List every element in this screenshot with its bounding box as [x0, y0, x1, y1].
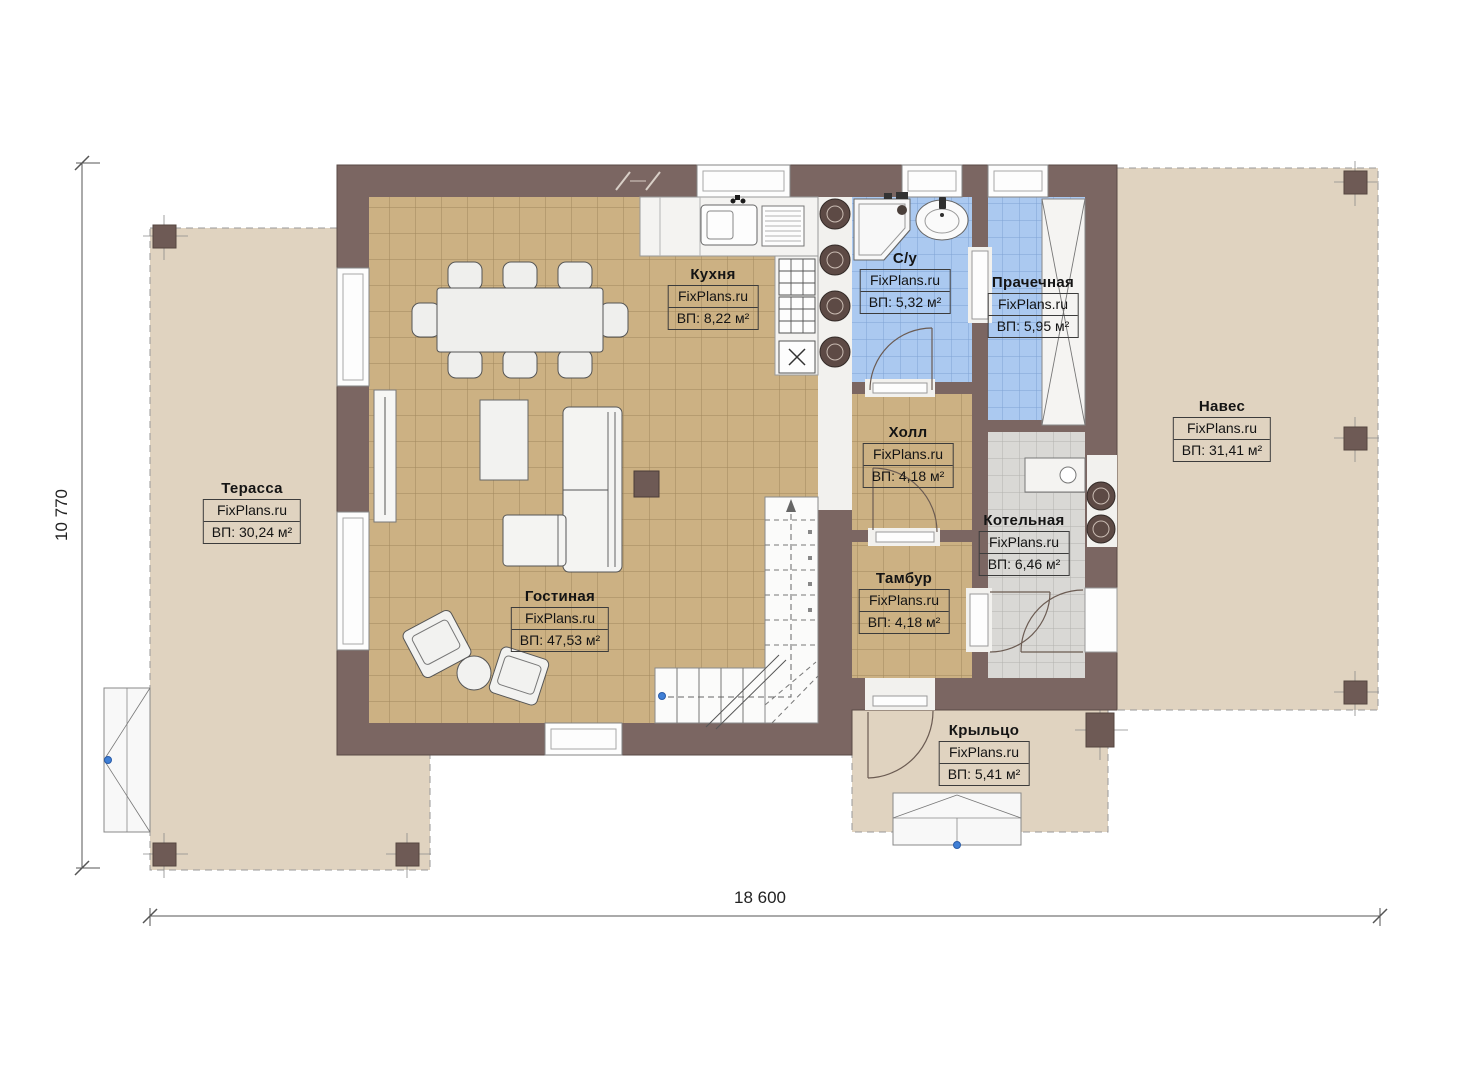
room-name: Навес	[1173, 398, 1271, 415]
room-info-box: FixPlans.ru ВП: 30,24 м²	[203, 499, 301, 544]
room-area: ВП: 30,24 м²	[204, 521, 300, 543]
boiler-unit	[1025, 458, 1085, 492]
room-info-box: FixPlans.ru ВП: 5,32 м²	[860, 269, 951, 314]
room-name: Прачечная	[988, 274, 1079, 291]
window-left-2	[337, 512, 369, 650]
room-info-box: FixPlans.ru ВП: 5,95 м²	[988, 293, 1079, 338]
room-label-porch: Крыльцо FixPlans.ru ВП: 5,41 м²	[939, 722, 1030, 786]
room-area: ВП: 31,41 м²	[1174, 439, 1270, 461]
chimney-shaft-strip	[818, 197, 852, 382]
dishwasher	[779, 341, 815, 373]
room-name: Холл	[863, 424, 954, 441]
kitchen-drainer	[762, 206, 804, 246]
room-info-box: FixPlans.ru ВП: 47,53 м²	[511, 607, 609, 652]
watermark-text: FixPlans.ru	[940, 742, 1029, 763]
side-table	[457, 656, 491, 690]
room-info-box: FixPlans.ru ВП: 4,18 м²	[859, 589, 950, 634]
watermark-text: FixPlans.ru	[989, 294, 1078, 315]
room-label-laundry: Прачечная FixPlans.ru ВП: 5,95 м²	[988, 274, 1079, 338]
tv-unit	[374, 390, 396, 522]
chimney-block	[634, 471, 659, 497]
dimension-line-vertical	[75, 156, 100, 875]
room-name: С/у	[860, 250, 951, 267]
porch-steps	[893, 793, 1021, 849]
watermark-text: FixPlans.ru	[1174, 418, 1270, 439]
room-area: ВП: 4,18 м²	[864, 465, 953, 487]
watermark-text: FixPlans.ru	[860, 590, 949, 611]
room-label-bathroom: С/у FixPlans.ru ВП: 5,32 м²	[860, 250, 951, 314]
boiler-flues	[1087, 455, 1117, 547]
room-name: Кухня	[668, 266, 759, 283]
room-info-box: FixPlans.ru ВП: 4,18 м²	[863, 443, 954, 488]
room-area: ВП: 5,41 м²	[940, 763, 1029, 785]
room-label-boiler: Котельная FixPlans.ru ВП: 6,46 м²	[979, 512, 1070, 576]
watermark-text: FixPlans.ru	[204, 500, 300, 521]
room-label-hall: Холл FixPlans.ru ВП: 4,18 м²	[863, 424, 954, 488]
room-area: ВП: 4,18 м²	[860, 611, 949, 633]
window-top-bathroom	[902, 165, 962, 197]
watermark-text: FixPlans.ru	[861, 270, 950, 291]
room-area: ВП: 5,32 м²	[861, 291, 950, 313]
room-area: ВП: 5,95 м²	[989, 315, 1078, 337]
passage-living-hall	[818, 382, 852, 510]
dimension-width-label: 18 600	[734, 888, 786, 908]
room-area: ВП: 6,46 м²	[980, 553, 1069, 575]
dimension-line-horizontal	[143, 908, 1387, 926]
room-name: Терасса	[203, 480, 301, 497]
room-label-kitchen: Кухня FixPlans.ru ВП: 8,22 м²	[668, 266, 759, 330]
window-left-1	[337, 268, 369, 386]
room-name: Крыльцо	[939, 722, 1030, 739]
room-label-vestibule: Тамбур FixPlans.ru ВП: 4,18 м²	[859, 570, 950, 634]
room-info-box: FixPlans.ru ВП: 5,41 м²	[939, 741, 1030, 786]
dimension-height-label: 10 770	[52, 489, 72, 541]
coffee-table	[480, 400, 528, 480]
watermark-text: FixPlans.ru	[669, 286, 758, 307]
room-label-canopy: Навес FixPlans.ru ВП: 31,41 м²	[1173, 398, 1271, 462]
watermark-text: FixPlans.ru	[512, 608, 608, 629]
room-label-living: Гостиная FixPlans.ru ВП: 47,53 м²	[511, 588, 609, 652]
floor-plan-page: Терасса FixPlans.ru ВП: 30,24 м² Кухня F…	[0, 0, 1474, 1080]
room-name: Гостиная	[511, 588, 609, 605]
room-info-box: FixPlans.ru ВП: 6,46 м²	[979, 531, 1070, 576]
window-top-laundry	[988, 165, 1048, 197]
terrace-steps	[104, 688, 150, 832]
room-area: ВП: 47,53 м²	[512, 629, 608, 651]
room-area: ВП: 8,22 м²	[669, 307, 758, 329]
watermark-text: FixPlans.ru	[864, 444, 953, 465]
room-info-box: FixPlans.ru ВП: 8,22 м²	[668, 285, 759, 330]
room-info-box: FixPlans.ru ВП: 31,41 м²	[1173, 417, 1271, 462]
window-bottom-living	[545, 723, 622, 755]
room-name: Тамбур	[859, 570, 950, 587]
room-label-terrace: Терасса FixPlans.ru ВП: 30,24 м²	[203, 480, 301, 544]
watermark-text: FixPlans.ru	[980, 532, 1069, 553]
room-name: Котельная	[979, 512, 1070, 529]
window-top-kitchen	[697, 165, 790, 197]
